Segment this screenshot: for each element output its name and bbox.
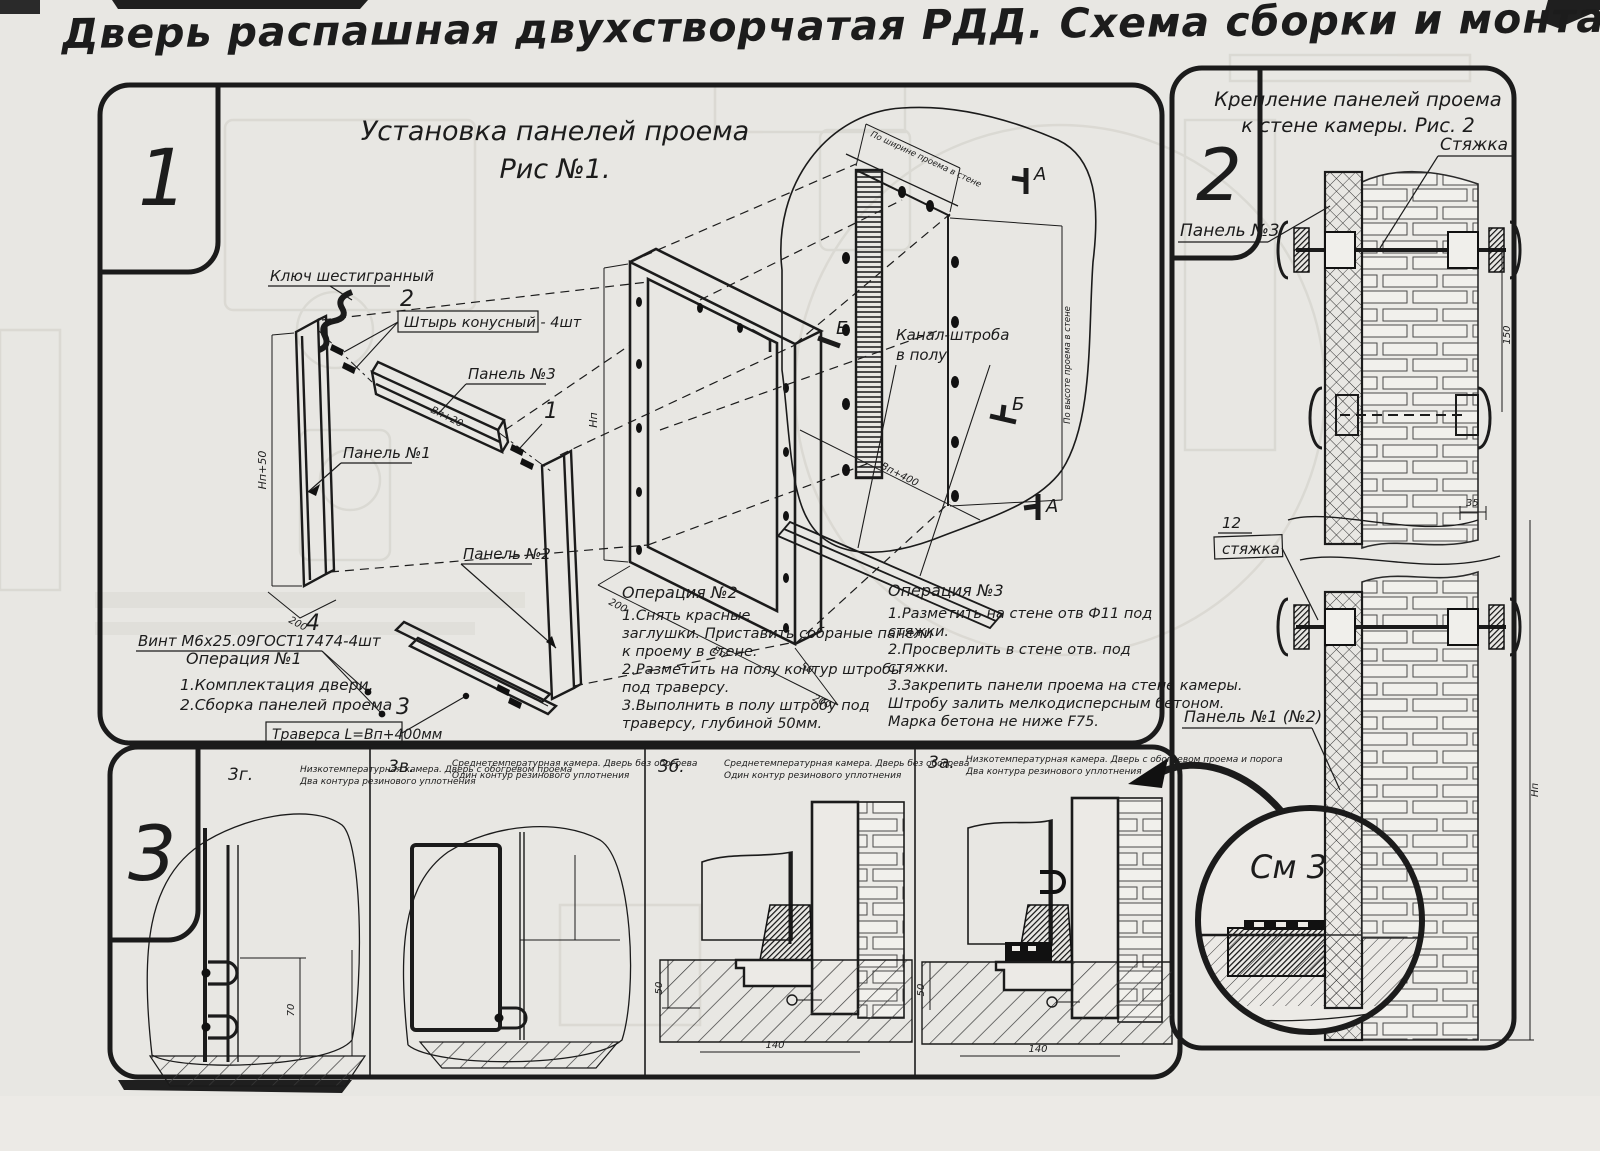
panel1-caption-line1: Установка панелей проема — [361, 116, 749, 147]
panel1-number: 1 — [138, 134, 188, 224]
tie-label: Стяжка — [1440, 135, 1508, 155]
dim-150-label: 150 — [1502, 325, 1513, 344]
op2-l2: к проему в стене. — [622, 644, 757, 660]
panel2-caption1: Крепление панелей проема — [1214, 88, 1502, 111]
op1-line2: 2.Сборка панелей проема — [180, 696, 392, 714]
dim-hp2-label: Нп — [1530, 783, 1541, 798]
op3-l3: стяжки. — [888, 660, 949, 676]
op2-l1: заглушки. Приставить собраные панели — [622, 626, 933, 642]
op3-l0: 1.Разметить на стене отв Ф11 под — [888, 606, 1152, 622]
mark-a1-label: А — [1033, 164, 1046, 185]
wall-section-upper — [1325, 172, 1478, 548]
channel-label-line1: Канал-штроба — [896, 326, 1009, 344]
panel2-part-label: Панель №2 — [463, 545, 551, 563]
paper-bottom-margin — [0, 1096, 1600, 1151]
hex-key-label: Ключ шестигранный — [270, 267, 434, 285]
op2-l5: 3.Выполнить в полу штробу под — [622, 698, 870, 714]
dim-140a-label: 140 — [1028, 1044, 1047, 1055]
sec3a-cap1: Низкотемпературная камера. Дверь с обогр… — [966, 755, 1283, 765]
traverse-label: Траверса L=Вп+400мм — [272, 727, 443, 743]
dim-140b-label: 140 — [765, 1040, 784, 1051]
op3-l6: Марка бетона не ниже F75. — [888, 714, 1099, 730]
op3-title: Операция №3 — [888, 581, 1004, 600]
panel3-part-label: Панель №3 — [468, 365, 556, 383]
sec3a-cap2: Два контура резинового уплотнения — [965, 767, 1142, 777]
op1-line1: 1.Комплектация двери. — [180, 676, 374, 694]
wall-jamb-strip — [856, 170, 882, 478]
sec3a-id: 3а. — [928, 753, 955, 773]
panel3-number: 3 — [128, 809, 176, 898]
callout-3: 3 — [396, 695, 410, 720]
panel1-part-label: Панель №1 — [343, 444, 431, 462]
panel2-number: 2 — [1196, 133, 1242, 217]
sec3g-cap2: Два контура резинового уплотнения — [299, 777, 476, 787]
dim-hp-label: Нп — [587, 412, 600, 427]
op2-l0: 1.Снять красные — [622, 608, 751, 624]
callout-1: 1 — [544, 399, 558, 424]
sec3v-id: 3в. — [388, 757, 414, 777]
op1-title: Операция №1 — [186, 649, 302, 668]
op3-l1: стяжки. — [888, 624, 949, 640]
callout-2: 2 — [400, 287, 414, 312]
sec3g-id: 3г. — [228, 765, 253, 785]
wall-height-label: По высоте проема в стене — [1063, 306, 1073, 424]
op3-l2: 2.Просверлить в стене отв. под — [888, 642, 1131, 658]
op2-title: Операция №2 — [622, 583, 738, 602]
op2-l6: траверсу, глубиной 50мм. — [622, 716, 822, 732]
screw-label: Винт М6х25.09ГОСТ17474-4шт — [138, 632, 382, 650]
op2-l4: под траверсу. — [622, 680, 729, 696]
sec3v-cap2: Один контур резинового уплотнения — [452, 771, 630, 781]
dim-hp50-label: Нп+50 — [256, 451, 269, 490]
mark-a2-label: А — [1045, 496, 1058, 517]
panel12-label: Панель №1 (№2) — [1184, 707, 1322, 726]
op2-l3: 2.Разметить на полу контур штробы — [622, 662, 902, 678]
tie12-number: 12 — [1222, 514, 1241, 532]
mark-b2-label: Б — [1012, 394, 1024, 415]
panel1-caption-line2: Рис №1. — [499, 154, 610, 185]
see3-label: См 3 — [1250, 848, 1327, 886]
dim-50a-label: 50 — [916, 984, 927, 997]
panel2-caption2: к стене камеры. Рис. 2 — [1241, 114, 1475, 137]
tie12-word: стяжка — [1222, 540, 1280, 558]
dim-50b-label: 50 — [654, 982, 665, 995]
dim-35-label: 35 — [1466, 498, 1479, 509]
op3-l4: 3.Закрепить панели проема на стене камер… — [888, 678, 1242, 694]
channel-label-line2: в полу — [896, 346, 948, 364]
sec3b-id: 3б. — [658, 757, 685, 777]
drawing-sheet: Дверь распашная двухстворчатая РДД. Схем… — [0, 0, 1600, 1151]
sec3b-cap2: Один контур резинового уплотнения — [724, 771, 902, 781]
dim-70-label: 70 — [286, 1004, 297, 1017]
pin-label: Штырь конусный - 4шт — [404, 315, 582, 331]
drawing-canvas: Дверь распашная двухстворчатая РДД. Схем… — [0, 0, 1600, 1151]
panel2-panel3-label: Панель №3 — [1180, 221, 1280, 241]
